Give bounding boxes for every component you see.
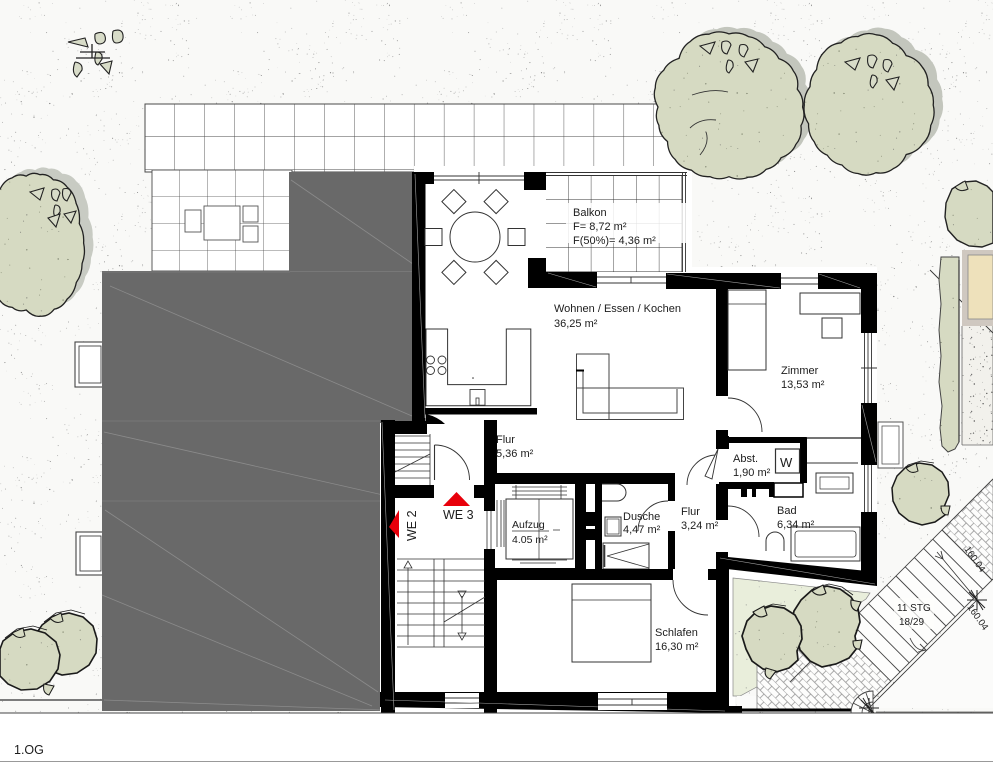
svg-text:Zimmer: Zimmer [781,365,819,377]
svg-text:6,34 m²: 6,34 m² [777,519,815,531]
svg-text:F= 8,72 m²: F= 8,72 m² [573,221,627,233]
svg-text:Wohnen / Essen / Kochen: Wohnen / Essen / Kochen [554,303,681,315]
svg-text:18/29: 18/29 [899,617,924,628]
svg-text:3,24 m²: 3,24 m² [681,520,719,532]
svg-text:16,30 m²: 16,30 m² [655,641,699,653]
svg-text:Flur: Flur [681,506,700,518]
svg-text:4.05 m²: 4.05 m² [512,534,548,546]
svg-text:5,36 m²: 5,36 m² [496,448,534,460]
svg-text:Flur: Flur [496,434,515,446]
svg-text:13,53 m²: 13,53 m² [781,379,825,391]
svg-text:36,25 m²: 36,25 m² [554,318,598,330]
svg-text:Aufzug: Aufzug [512,519,545,531]
svg-text:WE 2: WE 2 [405,510,419,541]
svg-text:Abst.: Abst. [733,453,758,465]
svg-text:Schlafen: Schlafen [655,627,698,639]
svg-text:1,90 m²: 1,90 m² [733,467,771,479]
svg-text:4,47 m²: 4,47 m² [623,524,661,536]
svg-text:F(50%)= 4,36 m²: F(50%)= 4,36 m² [573,235,656,247]
svg-text:1.OG: 1.OG [14,743,44,757]
svg-text:Bad: Bad [777,505,797,517]
svg-text:11 STG: 11 STG [897,603,931,614]
svg-text:W: W [780,455,793,470]
svg-text:WE 3: WE 3 [443,508,474,522]
svg-text:Balkon: Balkon [573,207,607,219]
svg-text:Dusche: Dusche [623,511,660,523]
